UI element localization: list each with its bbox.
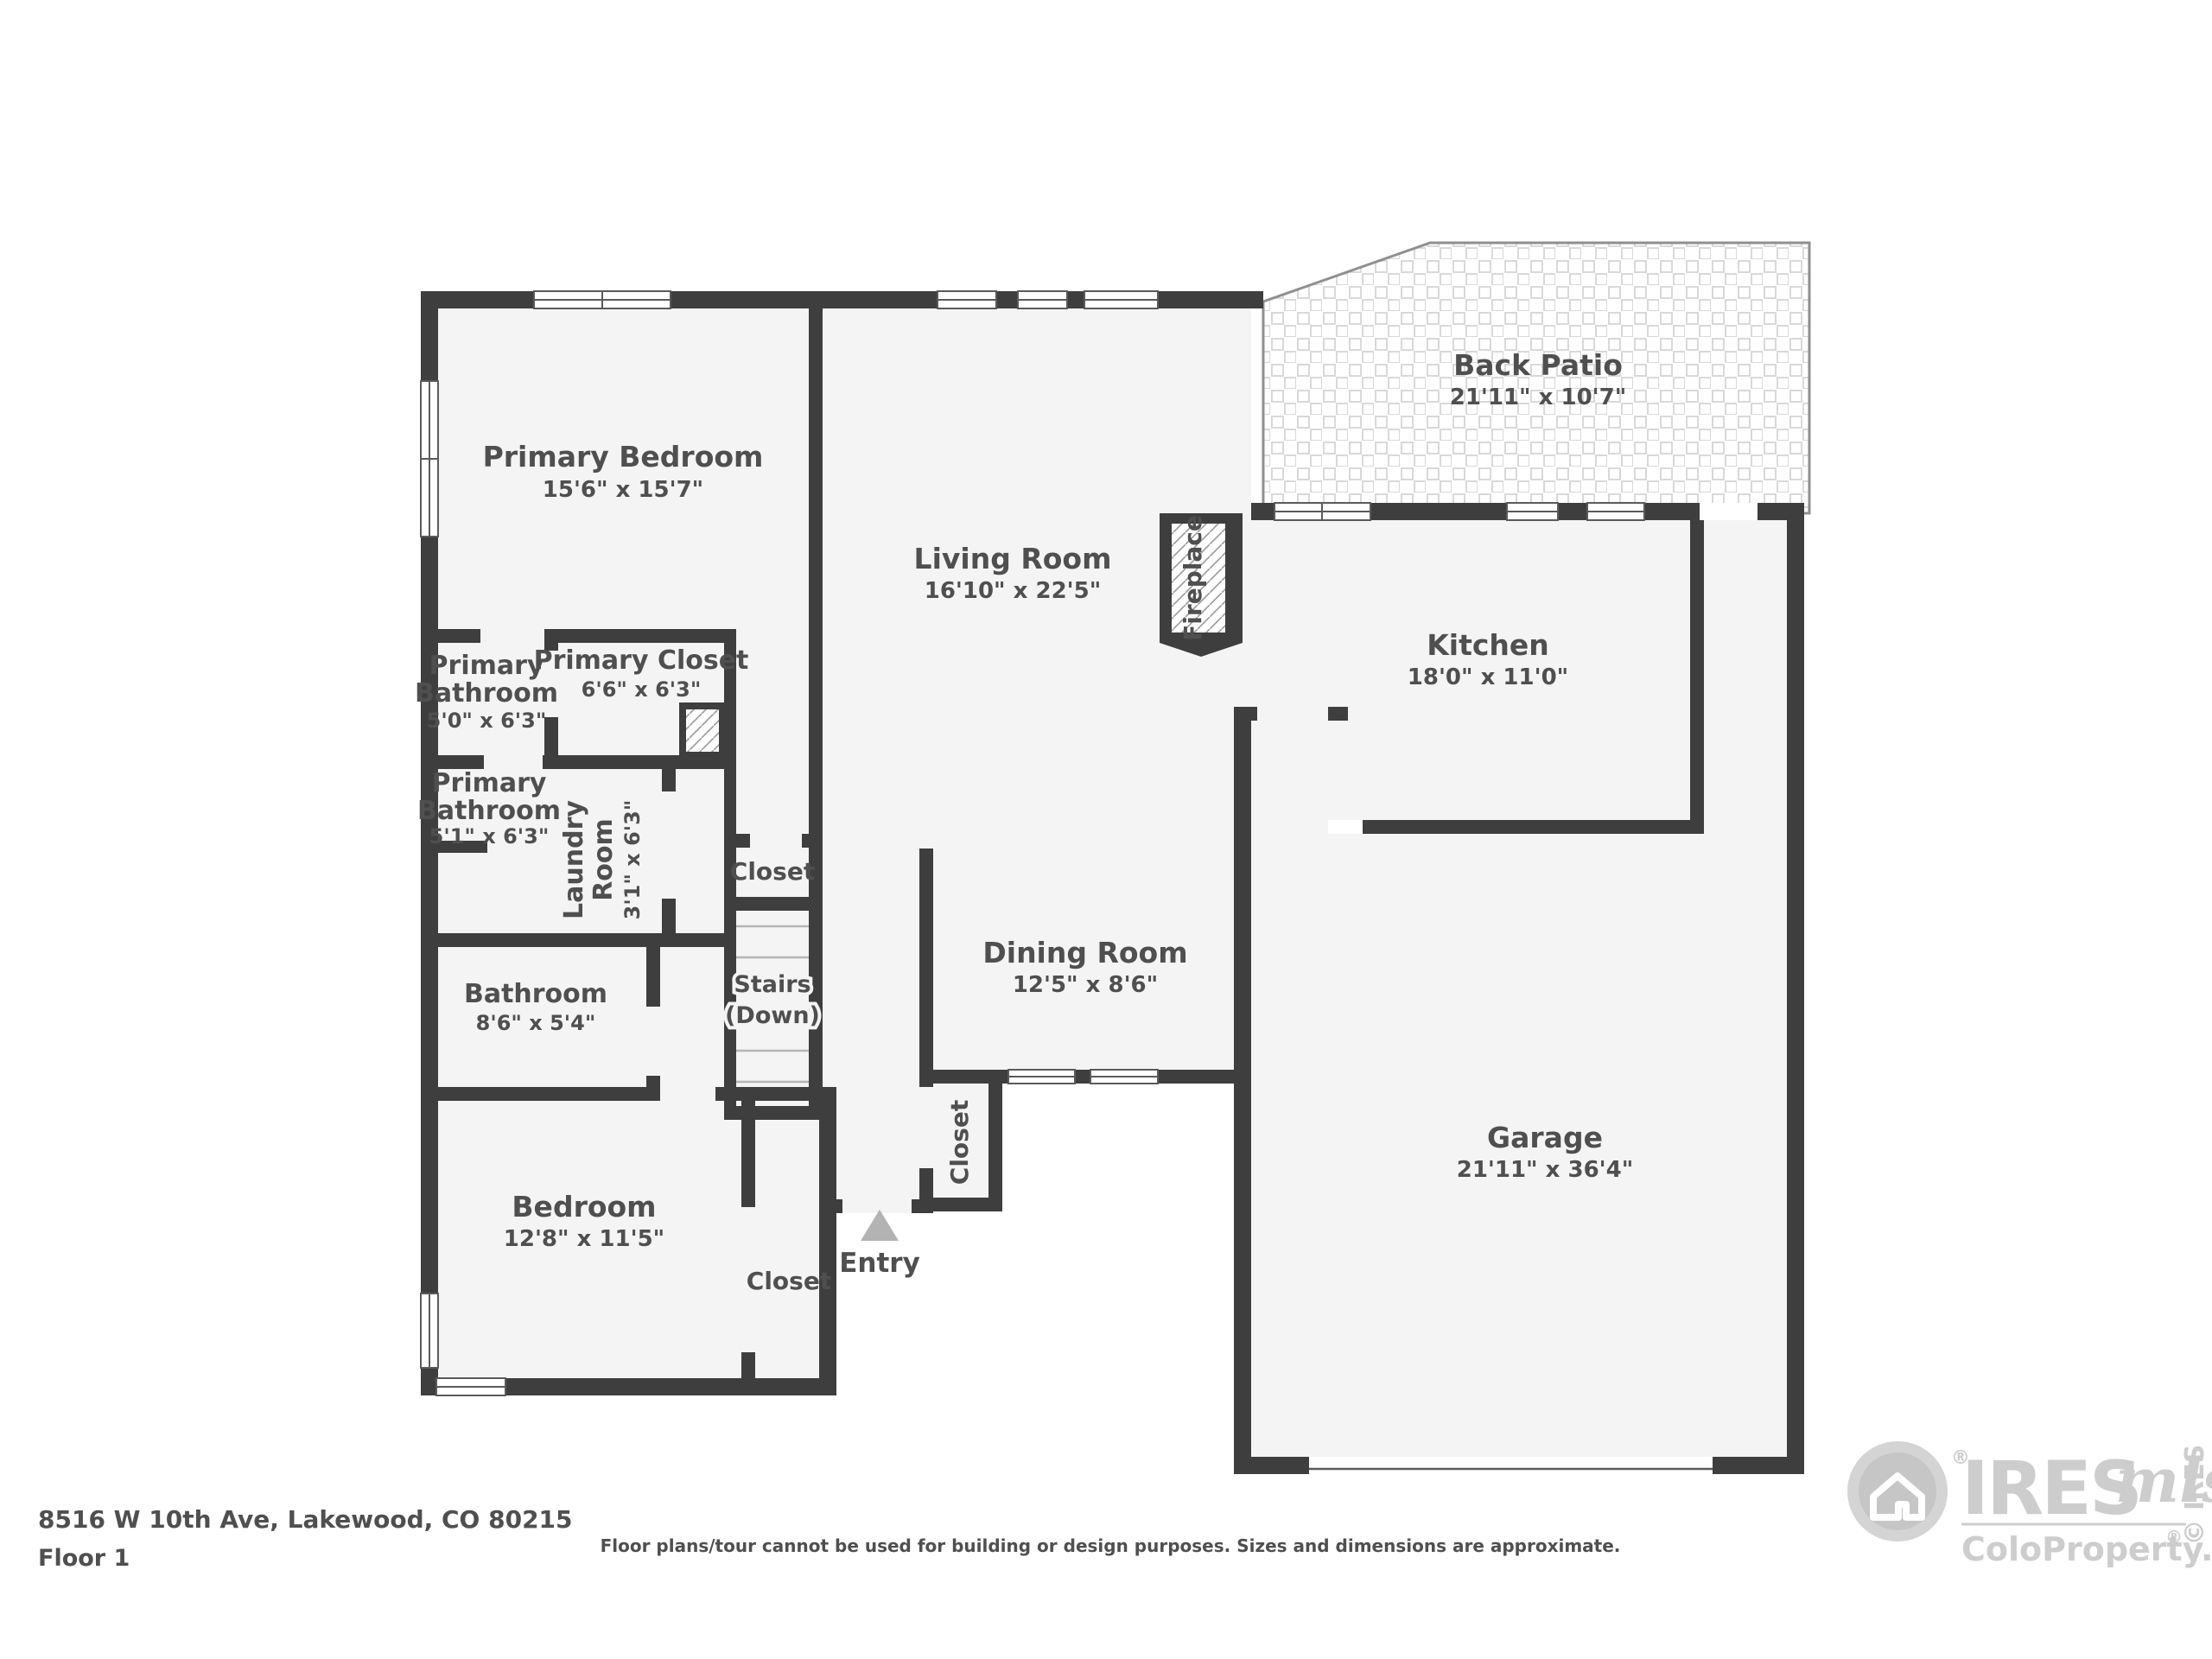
room-dims-back-patio: 21'11" x 10'7" xyxy=(1450,385,1627,410)
window xyxy=(1507,503,1558,520)
stairs-label-1: Stairs xyxy=(734,971,810,998)
window xyxy=(938,291,996,308)
room-dims-garage: 21'11" x 36'4" xyxy=(1457,1157,1634,1183)
room-label-garage: Garage xyxy=(1487,1121,1603,1154)
room-label-primary-bathroom-lower-2: Bathroom xyxy=(417,796,561,826)
chase xyxy=(679,702,726,759)
room-label-primary-closet: Primary Closet xyxy=(534,645,749,676)
room-label-primary-bathroom-upper-1: Primary xyxy=(429,651,544,681)
room-dims-dining-room: 12'5" x 8'6" xyxy=(1013,972,1158,998)
window xyxy=(1274,503,1370,520)
window xyxy=(436,1378,505,1395)
room-dims-living-room: 16'10" x 22'5" xyxy=(925,578,1102,604)
stairs-label-2: (Down) xyxy=(725,1002,820,1029)
logo-brand: IRES xyxy=(1961,1446,2140,1532)
window xyxy=(1090,1070,1158,1084)
chase-hatch xyxy=(686,709,719,752)
footer-address: 8516 W 10th Ave, Lakewood, CO 80215 xyxy=(38,1505,573,1534)
room-label-primary-bathroom-upper-2: Bathroom xyxy=(415,678,558,709)
room-label-kitchen: Kitchen xyxy=(1427,628,1549,662)
room-label-bedroom: Bedroom xyxy=(512,1190,656,1224)
footer-floor-label: Floor 1 xyxy=(38,1545,130,1572)
window xyxy=(534,291,671,308)
window xyxy=(1587,503,1644,520)
room-label-primary-bedroom: Primary Bedroom xyxy=(483,440,764,474)
window xyxy=(421,1294,438,1368)
room-label-laundry-2: Room xyxy=(588,818,619,901)
footer-disclaimer: Floor plans/tour cannot be used for buil… xyxy=(601,1535,1621,1556)
room-label-bathroom: Bathroom xyxy=(464,979,607,1009)
entry-marker-icon xyxy=(861,1210,899,1241)
window xyxy=(421,381,438,537)
closet-hall-label: Closet xyxy=(730,857,815,886)
garage-door xyxy=(1309,1457,1713,1474)
closet-bedroom-label: Closet xyxy=(747,1267,831,1295)
room-label-living-room: Living Room xyxy=(914,542,1112,575)
entry-label: Entry xyxy=(839,1248,920,1279)
kitchen-garage-door-opening xyxy=(1328,820,1363,834)
room-dims-kitchen: 18'0" x 11'0" xyxy=(1408,664,1568,690)
floorplan-canvas: Primary Bedroom 15'6" x 15'7" Living Roo… xyxy=(0,0,2212,1659)
patio-door-opening xyxy=(1700,503,1758,520)
room-dims-bedroom: 12'8" x 11'5" xyxy=(504,1226,664,1252)
room-dims-primary-bathroom-lower: 5'1" x 6'3" xyxy=(429,824,550,849)
room-label-back-patio: Back Patio xyxy=(1453,348,1623,382)
room-label-dining-room: Dining Room xyxy=(982,936,1187,969)
room-dims-primary-bathroom-upper: 5'0" x 6'3" xyxy=(427,709,547,733)
floor-entry-hall xyxy=(819,1084,1002,1213)
logo-vertical-ires: © IRES xyxy=(2180,1445,2210,1546)
window xyxy=(1084,291,1158,308)
fireplace-label: Fireplace xyxy=(1179,515,1207,641)
room-dims-primary-closet: 6'6" x 6'3" xyxy=(582,677,702,702)
window xyxy=(1018,291,1067,308)
room-dims-bathroom: 8'6" x 5'4" xyxy=(476,1011,596,1035)
closet-entry-label: Closet xyxy=(945,1100,974,1185)
room-dims-primary-bedroom: 15'6" x 15'7" xyxy=(543,477,703,503)
room-dims-laundry: 3'1" x 6'3" xyxy=(620,800,645,920)
room-label-laundry-1: Laundry xyxy=(559,800,589,919)
window xyxy=(1008,1070,1075,1084)
ires-logo: ® IRES mls ColoProperty.com ® © IRES xyxy=(1847,1441,2212,1568)
room-label-primary-bathroom-lower-1: Primary xyxy=(432,768,547,798)
